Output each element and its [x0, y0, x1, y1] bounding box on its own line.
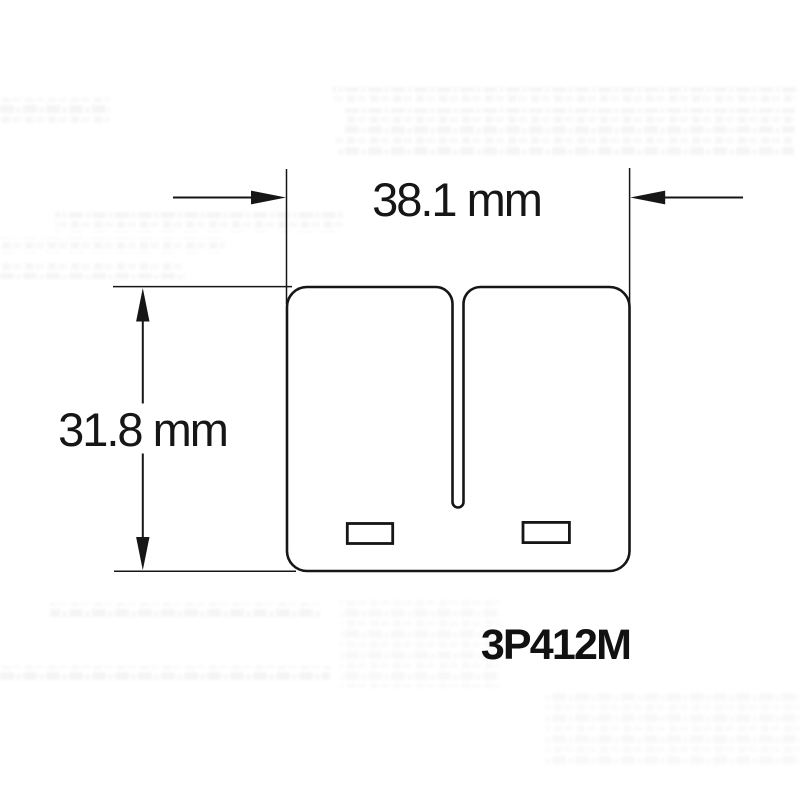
svg-text:3P412M: 3P412M: [481, 621, 630, 669]
svg-text:38.1 mm: 38.1 mm: [372, 173, 541, 226]
svg-text:31.8 mm: 31.8 mm: [58, 403, 227, 456]
